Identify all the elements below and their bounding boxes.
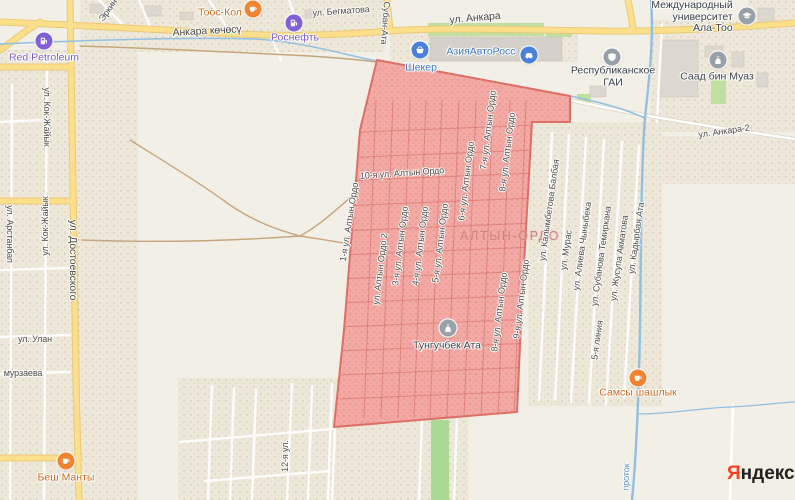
- university-icon[interactable]: [739, 8, 756, 25]
- food-icon[interactable]: [630, 370, 647, 387]
- poi-label-besh-manty[interactable]: Беш Манты: [38, 472, 95, 484]
- poi-label-toos-kol[interactable]: Тоос-Кол: [198, 7, 242, 19]
- poi-label-sheker[interactable]: Шекер: [405, 62, 437, 74]
- yandex-logo[interactable]: Яндекс: [727, 463, 795, 485]
- poi-label-ala-too-university[interactable]: МеждународныйуниверситетАла-Тоо: [651, 0, 732, 34]
- poi-label-saad-bin-muaz[interactable]: Саад бин Муаз: [680, 71, 754, 83]
- mosque-icon[interactable]: [710, 52, 727, 69]
- map-base-art: [0, 0, 795, 500]
- yandex-logo-rest: ндекс: [741, 463, 795, 484]
- mosque-icon[interactable]: [440, 320, 457, 337]
- car-icon[interactable]: [521, 47, 538, 64]
- poi-label-aziya-avtoross[interactable]: АзияАвтоРосс: [446, 46, 515, 58]
- poi-label-red-petroleum[interactable]: Red Petroleum: [9, 52, 79, 64]
- poi-label-respublikanskoe-gai[interactable]: РеспубликанскоеГАИ: [571, 66, 655, 89]
- poi-label-rosneft[interactable]: Роснефть: [271, 32, 319, 44]
- gas-icon[interactable]: [286, 15, 303, 32]
- food-icon[interactable]: [58, 453, 75, 470]
- basket-icon[interactable]: [412, 42, 429, 59]
- map-canvas[interactable]: Анкара көчөсүул. Бегматоваул. Анкараул. …: [0, 0, 795, 500]
- gas-icon[interactable]: [36, 33, 53, 50]
- shield-icon[interactable]: [604, 49, 621, 66]
- food-icon[interactable]: [245, 1, 262, 18]
- poi-label-tunguchbek-ata[interactable]: Тунгучбек Ата: [413, 340, 481, 352]
- yandex-logo-ya: Я: [727, 463, 741, 484]
- poi-label-samsy-shashlyk[interactable]: Самсы шашлык: [599, 387, 676, 399]
